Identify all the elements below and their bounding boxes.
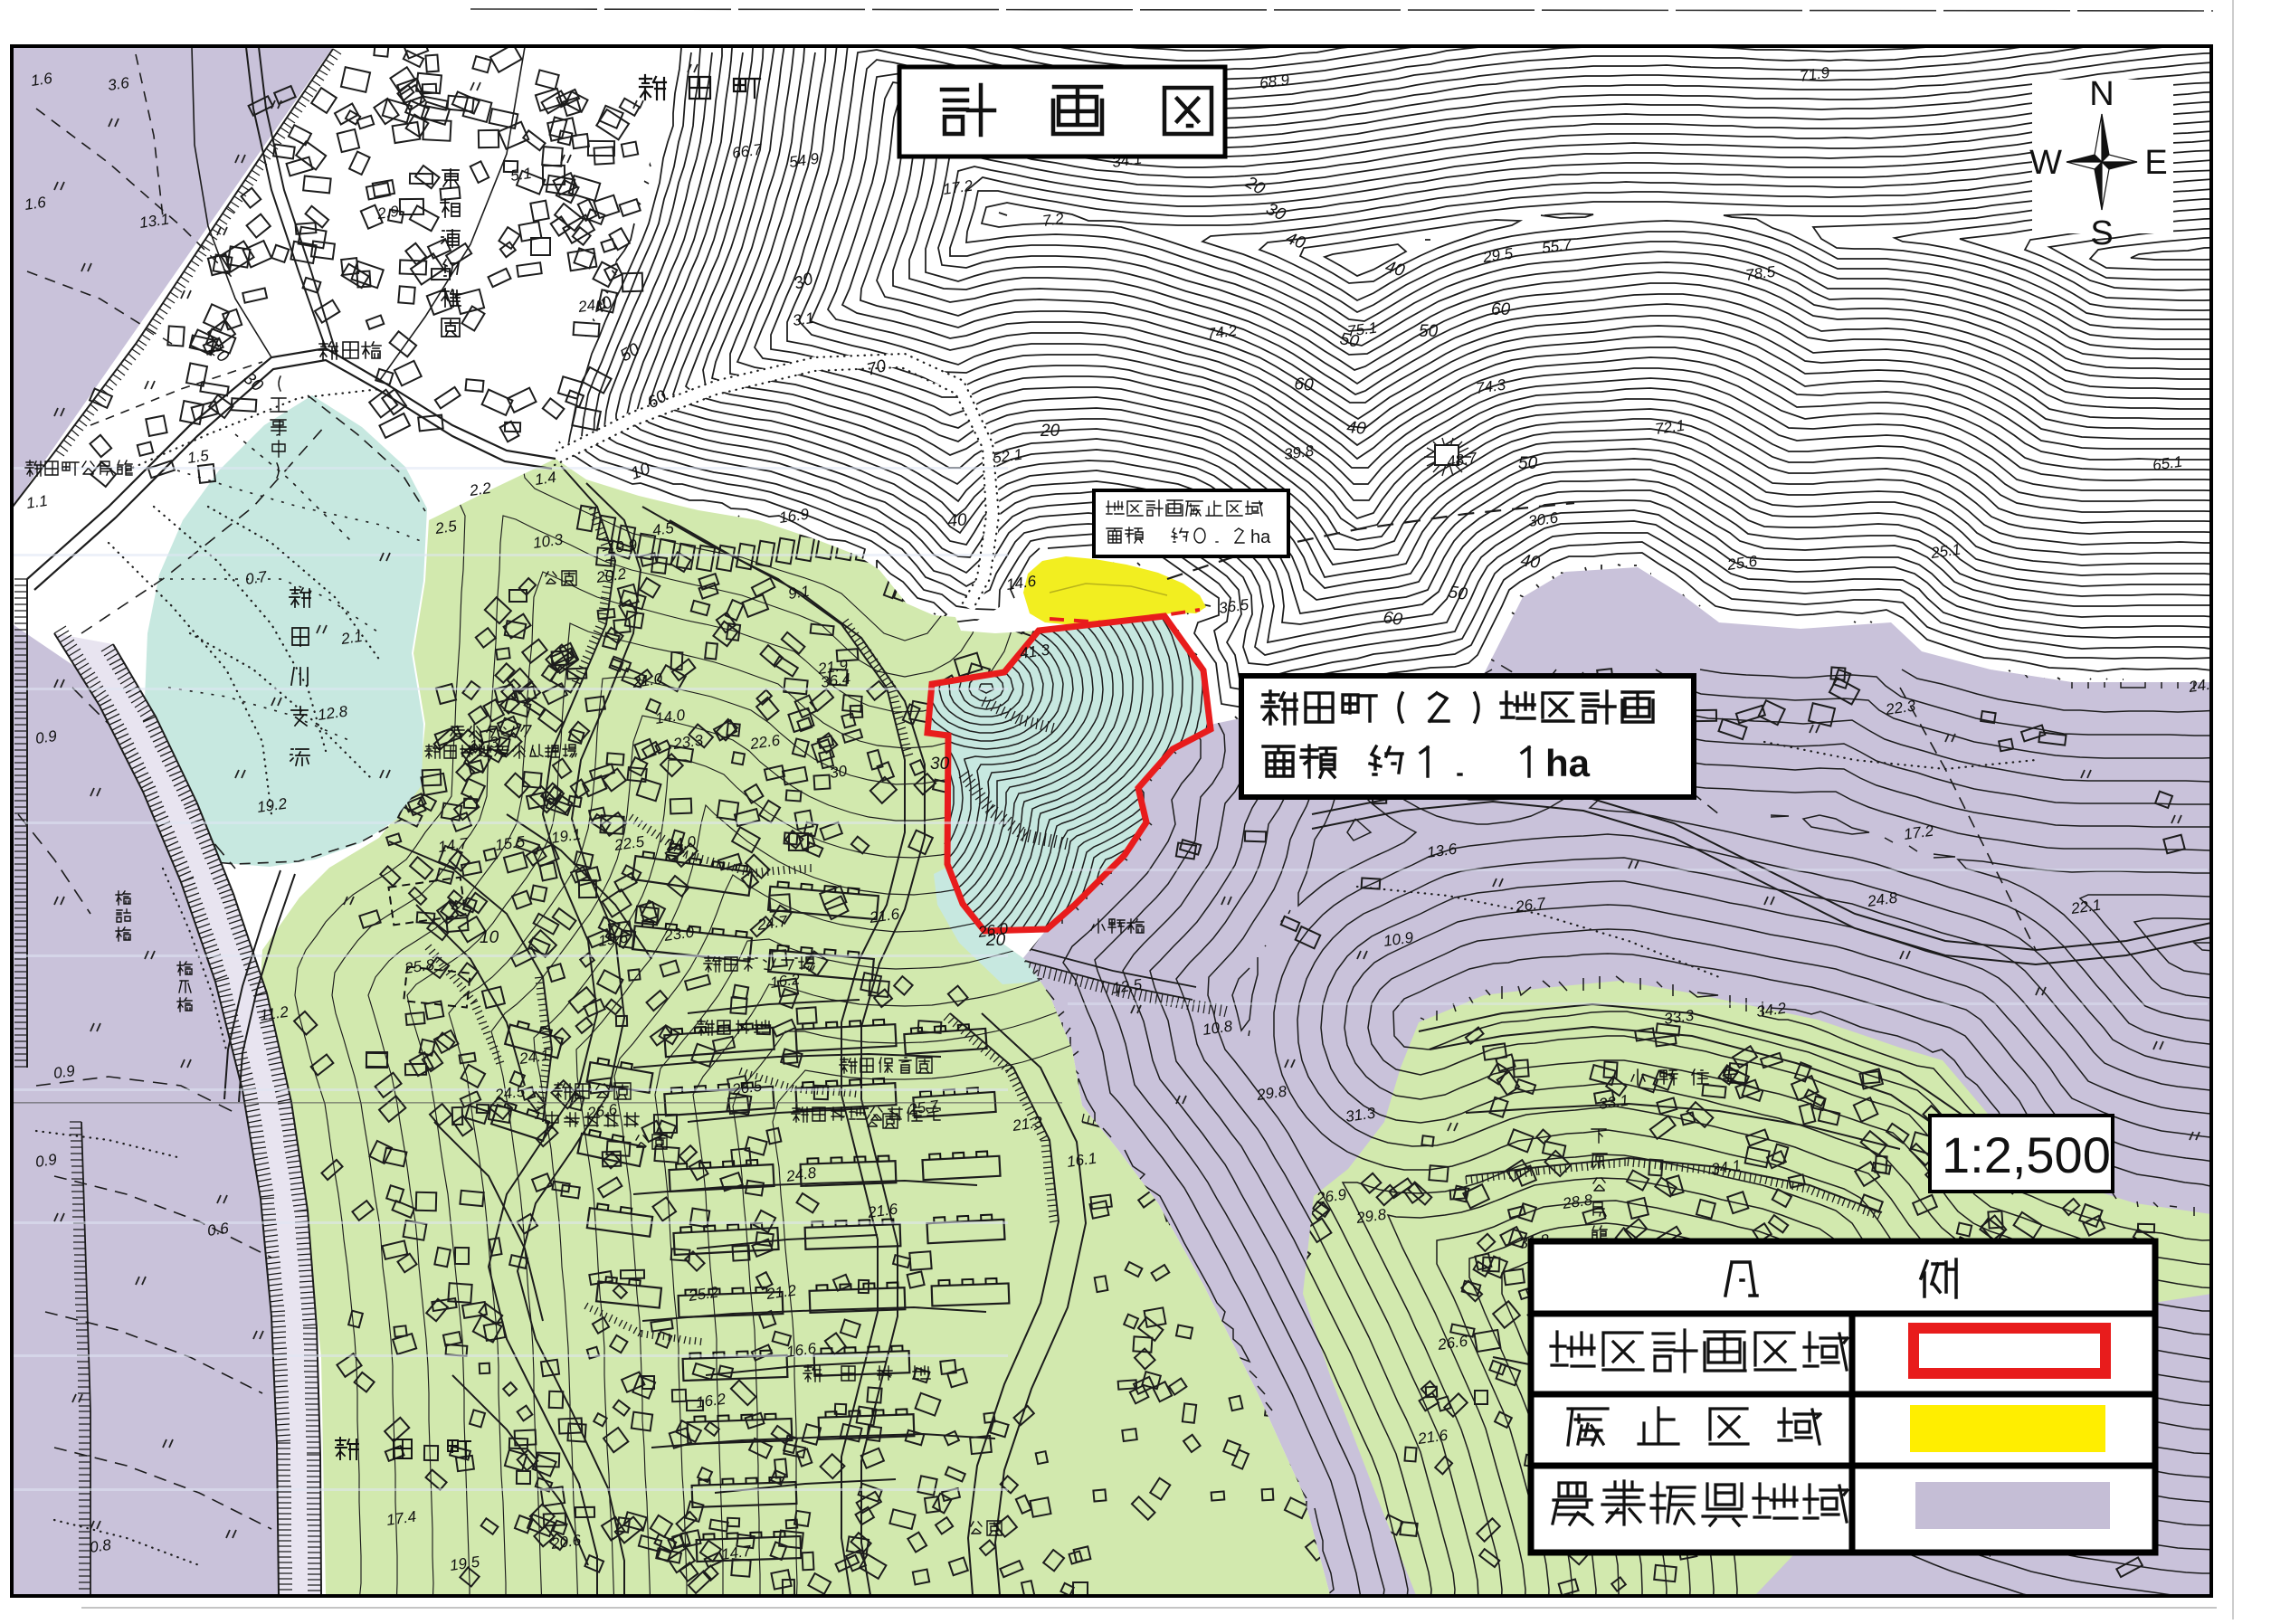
svg-text:60: 60 (1491, 300, 1511, 319)
svg-text:9.1: 9.1 (787, 583, 811, 603)
svg-text:60: 60 (1294, 375, 1315, 395)
svg-text:40: 40 (1346, 418, 1367, 439)
svg-text:E: E (2144, 144, 2167, 182)
svg-text:30: 30 (829, 762, 849, 782)
svg-text:60: 60 (1382, 608, 1403, 630)
svg-text:1.6: 1.6 (24, 194, 48, 214)
svg-text:N: N (2089, 75, 2114, 113)
svg-text:0.6: 0.6 (206, 1220, 231, 1239)
svg-text:50: 50 (1419, 322, 1439, 341)
svg-text:W: W (2029, 144, 2062, 182)
svg-text:0.9: 0.9 (34, 1151, 59, 1171)
svg-text:4.5: 4.5 (651, 519, 676, 539)
svg-text:50: 50 (1518, 454, 1538, 473)
svg-text:2.9: 2.9 (375, 203, 401, 223)
svg-text:50: 50 (1447, 583, 1468, 604)
svg-text:1.5: 1.5 (186, 447, 211, 467)
svg-text:1.4: 1.4 (534, 469, 557, 489)
svg-text:3.6: 3.6 (107, 74, 131, 94)
svg-text:S: S (2090, 214, 2113, 252)
svg-text:20: 20 (985, 931, 1006, 950)
svg-text:1.6: 1.6 (30, 70, 54, 90)
svg-text:2.2: 2.2 (468, 480, 493, 499)
svg-text:0.9: 0.9 (34, 727, 59, 747)
svg-text:1:2,500: 1:2,500 (1942, 1126, 2111, 1183)
svg-text:50: 50 (1338, 329, 1361, 351)
svg-text:40: 40 (1519, 551, 1541, 573)
svg-text:ha: ha (1545, 742, 1591, 784)
svg-text:0.7: 0.7 (244, 568, 269, 588)
svg-text:5.1: 5.1 (509, 165, 533, 185)
svg-text:30: 30 (930, 755, 950, 774)
svg-text:20: 20 (1040, 422, 1060, 441)
svg-text:40: 40 (947, 510, 968, 531)
svg-text:3.1: 3.1 (792, 309, 815, 329)
svg-text:0.9: 0.9 (52, 1062, 77, 1082)
svg-text:ha: ha (1250, 527, 1271, 547)
svg-text:7.2: 7.2 (1041, 210, 1066, 230)
svg-text:1.1: 1.1 (25, 492, 49, 512)
svg-text:10: 10 (480, 928, 499, 947)
svg-text:0.8: 0.8 (89, 1536, 113, 1556)
svg-text:2.5: 2.5 (433, 518, 459, 537)
svg-text:2.1: 2.1 (339, 628, 364, 648)
